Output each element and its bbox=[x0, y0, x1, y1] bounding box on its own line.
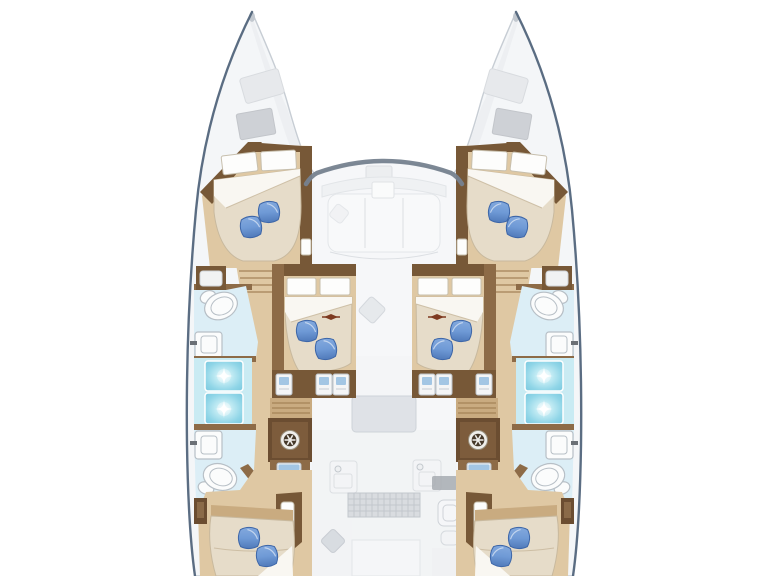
partition bbox=[194, 424, 256, 430]
bed-head-window bbox=[287, 278, 316, 295]
galley-faucet bbox=[335, 466, 341, 472]
cockpit-bench bbox=[328, 194, 440, 252]
bed-head-window bbox=[261, 150, 297, 171]
aft-cockpit-ghost bbox=[352, 540, 420, 576]
drawer-unit bbox=[276, 374, 292, 395]
galley-counter-dark bbox=[432, 476, 457, 490]
drawer-unit bbox=[333, 374, 349, 395]
cockpit-table bbox=[372, 182, 394, 198]
midship-cabin bbox=[272, 264, 356, 398]
deck-hatch bbox=[236, 108, 276, 140]
outboard-step-top bbox=[197, 502, 204, 518]
stairs bbox=[270, 398, 312, 420]
hull-window bbox=[301, 239, 311, 255]
cabin-wall bbox=[272, 264, 356, 276]
galley-grate bbox=[348, 493, 420, 517]
washbasin bbox=[190, 332, 222, 358]
saloon-table bbox=[352, 396, 416, 432]
cabin-wall bbox=[272, 264, 284, 374]
bed-head-window bbox=[320, 278, 350, 295]
bed-head-window bbox=[221, 152, 258, 175]
aft-locker-ghost bbox=[432, 548, 458, 576]
stove-knob bbox=[417, 464, 423, 470]
drawer-unit bbox=[316, 374, 332, 395]
helm-wheel-icon bbox=[281, 431, 300, 450]
yacht-layout-plan: Catamaran yacht deck layout plan — top v… bbox=[0, 0, 768, 576]
locker-lid bbox=[200, 271, 222, 286]
layout-svg: Catamaran yacht deck layout plan — top v… bbox=[0, 0, 768, 576]
washbasin bbox=[190, 431, 222, 459]
